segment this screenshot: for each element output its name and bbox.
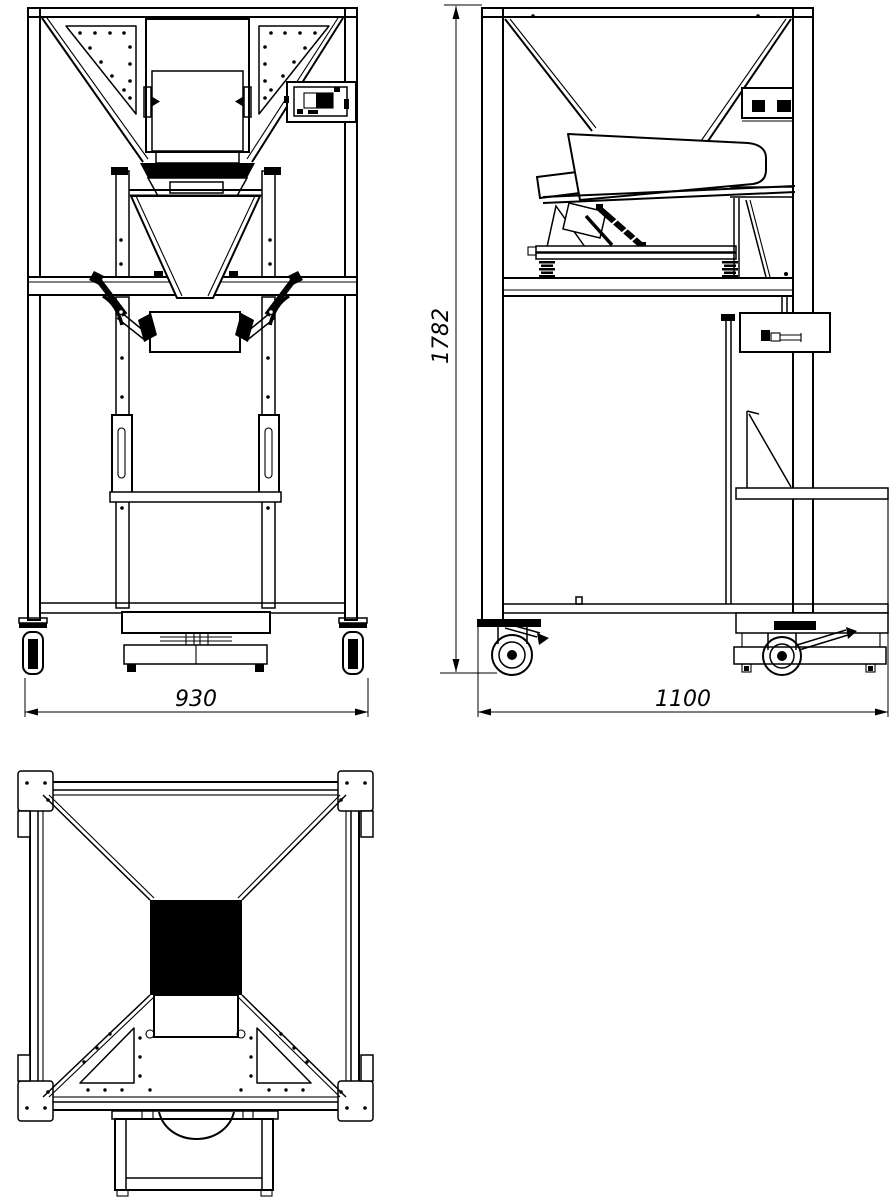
bottom-view [18,771,373,1196]
front-control-panel [284,82,356,122]
side-middle-beam [503,278,793,296]
front-view [19,8,367,674]
side-caster-front [477,619,549,675]
side-feed-hopper [505,19,791,144]
side-right-support [734,198,788,278]
front-caster-right [339,618,367,674]
front-base [122,612,270,672]
plan-funnel [43,795,346,1097]
dim-front-width-label: 930 [175,687,217,712]
side-lower-right [721,296,888,613]
spring-left [539,261,555,278]
dimension-front-width: 930 [25,678,368,717]
side-view [477,8,888,675]
plan-outlet-box [112,1111,278,1196]
vibratory-feeder [528,134,795,278]
bag-clamp-box [150,312,240,352]
dim-overall-height-label: 1782 [429,308,454,364]
dim-side-depth-label: 1100 [655,687,711,712]
technical-drawing-canvas: 930 [0,0,894,1204]
technical-drawing-page: 930 [0,0,894,1204]
front-caster-left [19,618,47,674]
spring-right [722,261,738,278]
side-rear-base [734,613,888,672]
dimension-overall-height: 1782 [429,5,497,673]
side-shelf [736,488,888,499]
plan-outlet-opening [150,900,242,995]
side-control-box [742,88,793,121]
